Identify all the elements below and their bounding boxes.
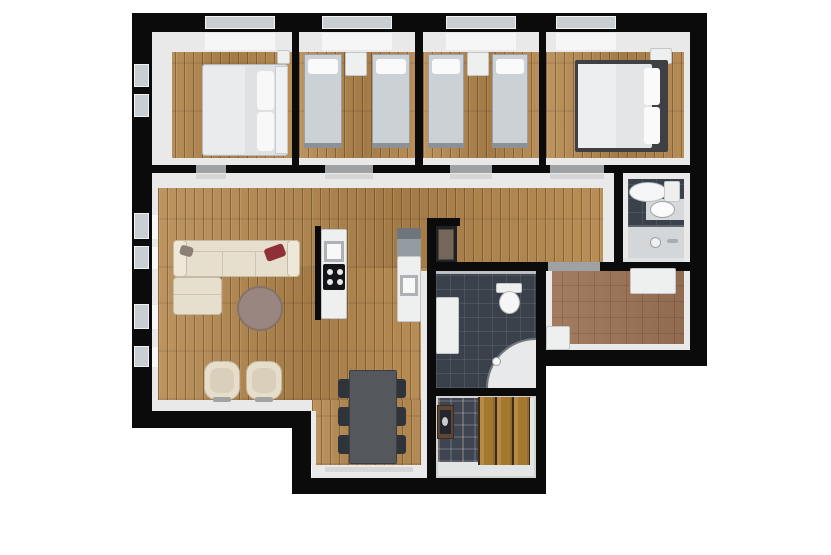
kitchen-burner-3 xyxy=(327,279,333,285)
wc-left-wall-face xyxy=(623,173,628,262)
bathroom-shower-head xyxy=(492,357,501,366)
outer-wall-bottom xyxy=(292,478,546,494)
floor-plan-render xyxy=(0,0,831,555)
living-window-sill-4 xyxy=(152,347,158,367)
bedroom-1-left-wall-face xyxy=(152,32,172,165)
bedroom-4-duvet xyxy=(578,64,616,148)
wall-bathroom-hallway xyxy=(536,262,546,480)
armchair-1-base xyxy=(213,397,231,402)
living-window-sill-2 xyxy=(152,247,158,269)
living-window-sill-1 xyxy=(152,215,158,239)
bathroom-door-panel xyxy=(438,229,454,260)
bedroom-1-nightstand xyxy=(277,50,290,64)
window-living-2 xyxy=(134,246,149,269)
bedroom-3-bed-b-foot xyxy=(492,143,528,148)
wc-shower-tap xyxy=(667,239,678,243)
passage-right-wall-face xyxy=(603,188,614,268)
window-bedroom-4 xyxy=(556,16,616,29)
bathroom-cabinet xyxy=(436,297,459,354)
wall-wc-left xyxy=(614,165,623,271)
wc-toilet-bowl xyxy=(629,182,667,202)
bedroom-3-nightstand xyxy=(467,52,489,76)
window-living-4 xyxy=(134,346,149,367)
door-bedroom-2 xyxy=(325,165,373,173)
wc-shower-drain xyxy=(650,237,661,248)
armchair-2-cushion xyxy=(252,368,276,393)
hallway-cabinet-bottom xyxy=(546,326,570,350)
bedroom-3-window-glow xyxy=(446,33,516,50)
lintel-bedroom-3 xyxy=(450,174,492,179)
wall-br3-br4 xyxy=(539,13,546,173)
door-bedroom-3 xyxy=(450,165,492,173)
bedroom-1-headboard xyxy=(275,66,288,154)
bedroom-3-bed-b-pillow xyxy=(496,59,524,74)
bedroom-4-window-glow xyxy=(556,33,616,50)
window-living-1 xyxy=(134,213,149,239)
lintel-bedroom-2 xyxy=(325,174,373,179)
door-bedroom-1 xyxy=(196,165,226,173)
wall-br1-br2 xyxy=(292,13,299,173)
wc-top-wall-face xyxy=(628,173,684,179)
kitchen-sink-2-basin xyxy=(403,278,415,293)
living-bottom-wall-face xyxy=(152,400,312,411)
armchair-2-base xyxy=(255,397,273,402)
kitchen-burner-1 xyxy=(327,269,333,275)
window-living-3 xyxy=(134,304,149,329)
kitchen-fridge xyxy=(397,239,421,256)
lintel-dining-window xyxy=(325,467,413,472)
sofa-seam-1 xyxy=(222,251,223,276)
outer-wall-hallway-bottom xyxy=(536,350,707,366)
dining-table xyxy=(349,370,397,464)
bedroom-4-pillow-a xyxy=(644,68,660,105)
wall-dining-bathroom xyxy=(427,218,436,480)
bedroom-1-pillow-a xyxy=(257,71,274,110)
sofa-chaise xyxy=(173,277,222,315)
bedroom-3-bed-a-foot xyxy=(428,143,464,148)
wc-glass-divider xyxy=(628,225,684,227)
bedroom-2-nightstand xyxy=(345,52,367,76)
window-bedroom-1 xyxy=(205,16,275,29)
bedroom-2-bed-a-pillow xyxy=(308,59,338,74)
armchair-1-cushion xyxy=(210,368,234,393)
hallway-cabinet-top xyxy=(630,268,676,294)
bedroom-1-duvet xyxy=(203,66,245,154)
bedroom-1-window-glow xyxy=(205,33,275,50)
window-bedroom-2 xyxy=(322,16,392,29)
window-bedroom-1-side-b xyxy=(134,94,149,117)
bedroom-4-pillow-b xyxy=(644,107,660,144)
dining-left-wall-face xyxy=(311,411,316,465)
kitchen-burner-4 xyxy=(337,279,343,285)
kitchen-sink-1-basin xyxy=(327,244,341,259)
kitchen-fridge-top xyxy=(397,228,421,239)
bedroom-2-window-glow xyxy=(322,33,392,50)
bedroom-2-bed-a-foot xyxy=(304,143,342,148)
lintel-bedroom-4 xyxy=(550,174,604,179)
kitchen-cooktop xyxy=(323,264,345,290)
outer-wall-right xyxy=(690,13,707,366)
lintel-bedroom-1 xyxy=(196,174,226,179)
bedroom-2-bed-b-foot xyxy=(372,143,410,148)
bedroom-1-pillow-b xyxy=(257,112,274,151)
bathroom-toilet-bowl xyxy=(499,291,520,314)
entry-door-planks xyxy=(478,397,530,465)
entry-frame-glyph xyxy=(442,417,448,426)
wc-toilet-tank xyxy=(664,181,680,202)
outer-wall-bottom-left xyxy=(132,411,311,428)
wall-br2-br3 xyxy=(415,13,423,173)
wall-niche-top xyxy=(427,218,460,226)
round-rug xyxy=(237,286,283,331)
sofa-seam-2 xyxy=(255,251,256,276)
wc-sink xyxy=(650,201,675,218)
sofa-chaise-seam xyxy=(174,294,221,295)
bedroom-2-bed-b-pillow xyxy=(376,59,406,74)
bedroom-3-bed-a-pillow xyxy=(432,59,460,74)
door-bedroom-4 xyxy=(550,165,604,173)
window-bedroom-3 xyxy=(446,16,516,29)
window-bedroom-1-side-a xyxy=(134,64,149,87)
living-window-sill-3 xyxy=(152,305,158,329)
kitchen-burner-2 xyxy=(337,269,343,275)
sofa-arm-right xyxy=(287,240,300,277)
door-hallway xyxy=(548,262,600,271)
wall-bathroom-bottom xyxy=(427,388,546,396)
bathroom-top-face xyxy=(436,271,536,274)
